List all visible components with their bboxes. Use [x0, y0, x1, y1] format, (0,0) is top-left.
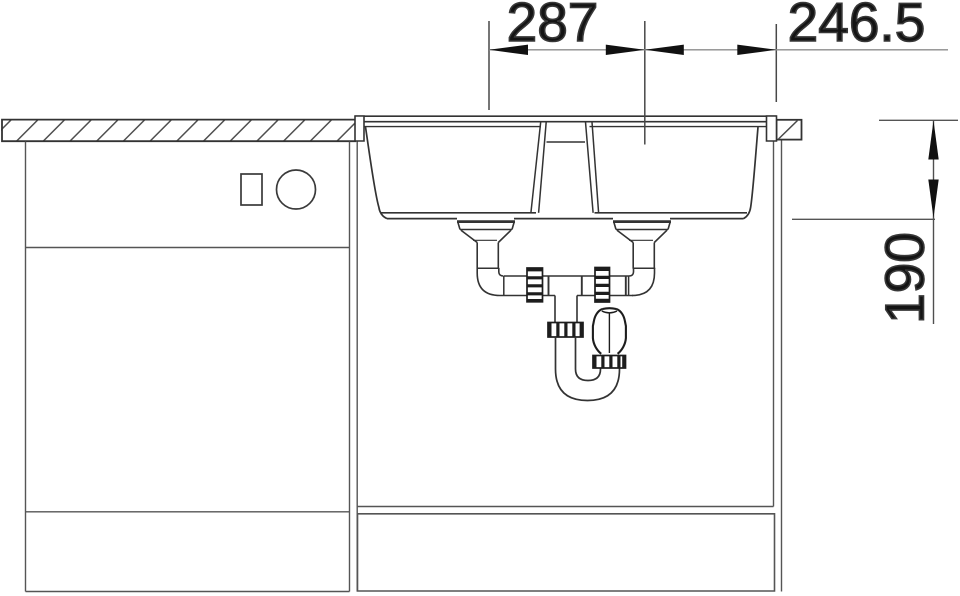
svg-text:246.5: 246.5: [788, 0, 926, 53]
svg-text:287: 287: [507, 0, 599, 53]
svg-text:190: 190: [874, 232, 936, 324]
